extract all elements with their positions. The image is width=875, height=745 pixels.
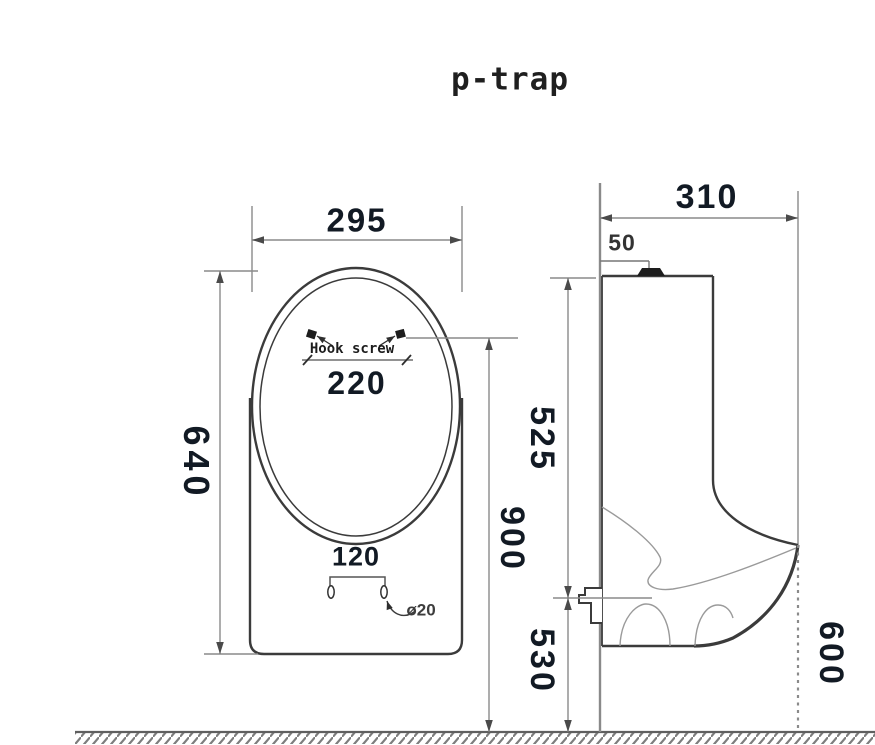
dim-label-hole-spacing: 120 xyxy=(332,544,380,571)
dim-label-inlet-offset: 50 xyxy=(608,232,636,255)
drawing-lines xyxy=(0,0,875,745)
dim-label-hook-height: 900 xyxy=(495,506,529,572)
front-view-outline xyxy=(250,268,462,654)
p-trap-spec-diagram: p-trap 295 640 Hook screw 220 120 ø20 90… xyxy=(0,0,875,745)
dim-label-front-width: 295 xyxy=(326,204,387,237)
dim-label-side-depth: 310 xyxy=(676,180,739,214)
dim-label-spout-to-floor: 600 xyxy=(814,621,848,687)
dim-label-rim-to-outlet: 525 xyxy=(525,406,559,472)
hook-screw-label: Hook screw xyxy=(310,342,394,356)
side-view-outline xyxy=(579,268,798,646)
dim-label-front-height: 640 xyxy=(178,425,214,500)
dim-label-hole-diameter: ø20 xyxy=(406,602,435,619)
drawing-title: p-trap xyxy=(451,65,569,96)
dim-label-outlet-to-floor: 530 xyxy=(525,628,559,694)
dim-label-hook-spacing: 220 xyxy=(327,367,386,399)
ground-hatch xyxy=(75,732,875,744)
trap-interior-curves xyxy=(602,507,796,646)
dim-50 xyxy=(600,261,649,269)
